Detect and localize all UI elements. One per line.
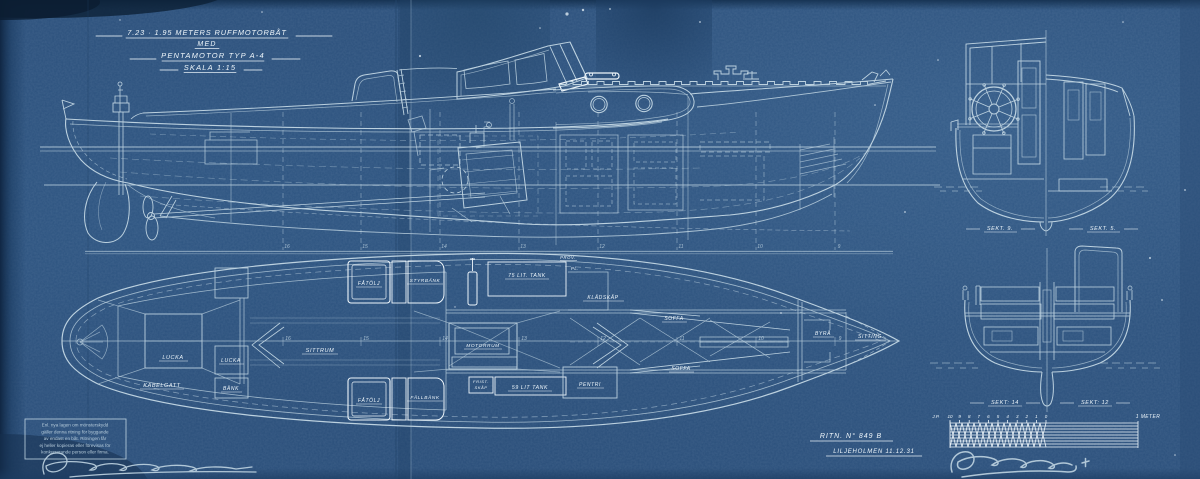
svg-text:KLÄDSKÅP: KLÄDSKÅP: [587, 294, 618, 301]
svg-text:SITTRUM: SITTRUM: [306, 348, 335, 354]
svg-text:J.P.: J.P.: [931, 414, 939, 419]
svg-text:ej heller kopieras eller förev: ej heller kopieras eller förevisas för: [40, 443, 111, 448]
svg-text:SITTING: SITTING: [858, 334, 882, 340]
svg-text:SEKT: 14: SEKT: 14: [991, 400, 1019, 406]
svg-text:1 METER: 1 METER: [1136, 414, 1160, 420]
svg-text:10: 10: [947, 414, 953, 419]
svg-text:13: 13: [521, 336, 527, 342]
svg-text:Enl. nya lagen om mönsterskydd: Enl. nya lagen om mönsterskydd: [42, 423, 109, 428]
svg-text:FÄLLBÄNK: FÄLLBÄNK: [410, 394, 440, 401]
svg-text:FÅTÖLJ: FÅTÖLJ: [358, 280, 380, 287]
svg-text:gäller denna ritning för bygga: gäller denna ritning för byggande: [41, 429, 109, 434]
svg-text:LUCKA: LUCKA: [162, 355, 183, 361]
svg-text:FÅTÖLJ: FÅTÖLJ: [358, 397, 380, 404]
svg-text:14: 14: [441, 244, 447, 250]
svg-text:SEKT. 9.: SEKT. 9.: [987, 226, 1013, 232]
svg-text:BÄNK: BÄNK: [223, 385, 239, 392]
svg-text:16: 16: [285, 336, 291, 342]
svg-text:12: 12: [600, 336, 606, 342]
svg-text:STYRBÄNK: STYRBÄNK: [410, 277, 441, 284]
svg-text:15: 15: [363, 336, 369, 342]
svg-text:SKALA 1:15: SKALA 1:15: [184, 63, 237, 72]
svg-text:12: 12: [599, 244, 605, 250]
svg-text:PENTRI: PENTRI: [579, 382, 601, 388]
svg-text:15: 15: [362, 244, 368, 250]
svg-text:SKÅP: SKÅP: [474, 385, 487, 390]
svg-text:SEKT. 5.: SEKT. 5.: [1090, 226, 1116, 232]
svg-text:FRIST.: FRIST.: [473, 379, 489, 384]
svg-text:13: 13: [520, 244, 526, 250]
svg-text:RITN. N° 849 B: RITN. N° 849 B: [820, 432, 882, 440]
svg-text:9: 9: [839, 336, 842, 342]
svg-text:MED: MED: [197, 41, 216, 48]
svg-text:BYRÅ: BYRÅ: [815, 330, 831, 337]
svg-text:av endast en båt. Ritningen f: av endast en båt. Ritningen får: [44, 435, 107, 441]
svg-text:10: 10: [757, 244, 763, 250]
svg-text:SOFFA: SOFFA: [664, 316, 683, 322]
svg-text:MOTORRUM: MOTORRUM: [466, 343, 500, 349]
svg-text:75 LIT. TANK: 75 LIT. TANK: [508, 273, 546, 279]
svg-text:KABELGATT: KABELGATT: [143, 383, 180, 389]
svg-text:14: 14: [442, 336, 448, 342]
svg-text:LUCKA: LUCKA: [221, 358, 241, 364]
svg-text:PROV.: PROV.: [560, 255, 576, 260]
svg-text:11: 11: [679, 336, 684, 342]
svg-text:16: 16: [284, 244, 290, 250]
svg-text:11: 11: [678, 244, 683, 250]
svg-text:10: 10: [758, 336, 764, 342]
svg-text:7.23 · 1.95 METERS RUFFMOTORBÅ: 7.23 · 1.95 METERS RUFFMOTORBÅT: [127, 28, 287, 37]
svg-text:SEKT: 12: SEKT: 12: [1081, 400, 1109, 406]
svg-text:2: 2: [1025, 414, 1029, 419]
svg-text:PL.: PL.: [571, 266, 579, 271]
svg-text:9: 9: [838, 244, 841, 250]
svg-text:59 LIT TANK: 59 LIT TANK: [512, 385, 548, 391]
svg-text:LILJEHOLMEN 11.12.31: LILJEHOLMEN 11.12.31: [833, 449, 915, 455]
svg-text:SOFFA: SOFFA: [671, 366, 690, 372]
svg-text:PENTAMOTOR TYP A-4: PENTAMOTOR TYP A-4: [161, 51, 265, 60]
